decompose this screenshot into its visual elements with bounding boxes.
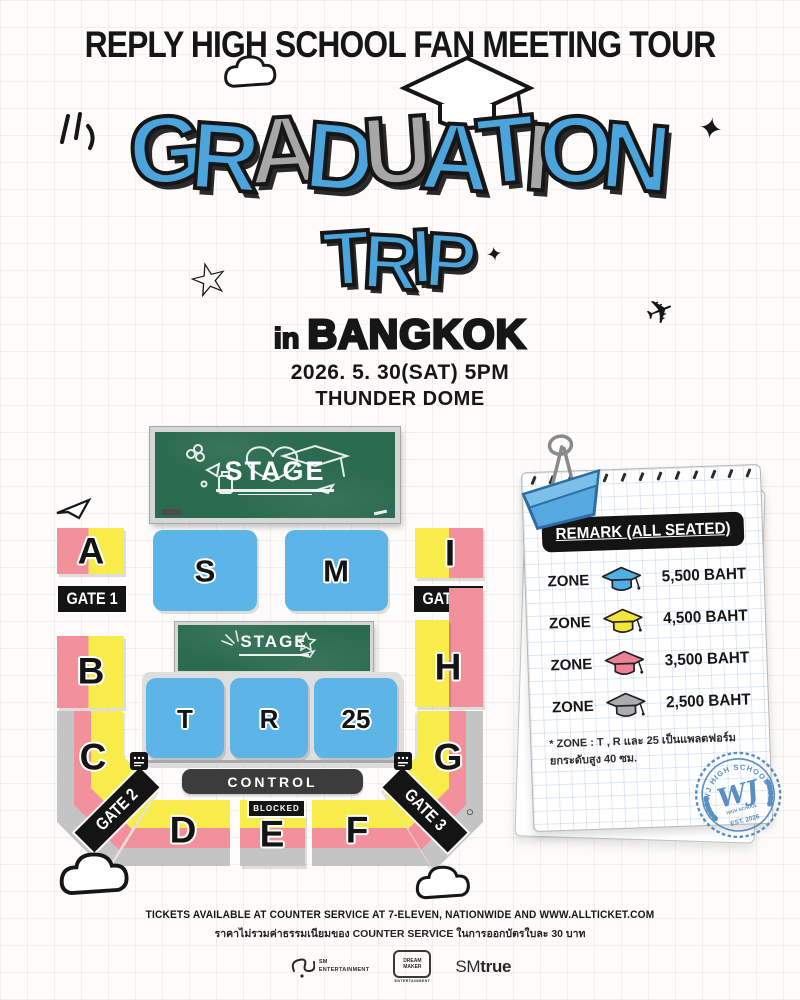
blocked-label: BLOCKED	[249, 801, 304, 816]
paper-plane-doodle	[56, 498, 92, 522]
zone-m-label: M	[323, 556, 349, 587]
zone-e-label: E	[260, 816, 285, 853]
zone-label: ZONE	[552, 697, 605, 716]
event-venue: THUNDER DOME	[0, 388, 800, 411]
price-value: 4,500 BAHT	[663, 607, 748, 628]
sponsor-logo-row: SM ENTERTAINMENT DREAM MAKER ENTERTAINME…	[0, 950, 800, 983]
cloud-doodle	[58, 848, 156, 906]
hero-title-line1: GRADUATION	[0, 100, 800, 206]
binder-clip-icon	[499, 406, 617, 534]
zone-h-label: H	[435, 649, 462, 686]
location-city: BANGKOK	[307, 311, 526, 357]
price-value: 5,500 BAHT	[661, 565, 746, 586]
zone-b-label: B	[78, 653, 105, 690]
zone-t-label: T	[177, 706, 193, 732]
grad-cap-gray-icon	[603, 688, 648, 722]
zone-s-label: S	[195, 556, 216, 587]
zone-label: ZONE	[547, 571, 600, 590]
sm-logo-icon	[289, 955, 315, 979]
second-stage-label: STAGE	[178, 632, 370, 652]
main-stage-label: STAGE	[155, 456, 395, 487]
cloud-doodle	[415, 862, 491, 908]
zone-g-label: G	[434, 739, 463, 776]
zone-25-label: 25	[342, 706, 371, 732]
control-booth: CONTROL	[182, 769, 363, 794]
remark-notepad: REMARK (ALL SEATED) ZONE 5,500 BAHT ZONE	[521, 464, 773, 832]
zone-d-label: D	[170, 812, 197, 849]
hero-location-line: inBANGKOK	[0, 311, 800, 358]
price-value: 2,500 BAHT	[666, 691, 751, 712]
camera-box-icon	[394, 752, 412, 770]
zone-f-label: F	[346, 812, 369, 849]
zone-label: ZONE	[549, 613, 602, 632]
chalk-icon	[374, 510, 387, 516]
grad-cap-blue-icon	[599, 562, 644, 596]
zone-c-label: C	[80, 739, 107, 776]
camera-box-icon	[130, 752, 148, 770]
dream-maker-logo: DREAM MAKER ENTERTAINMENT	[393, 950, 431, 983]
location-prefix: in	[274, 323, 300, 355]
fan-meeting-poster: REPLY HIGH SCHOOL FAN MEETING TOUR ✦ ☆ ✦…	[0, 0, 800, 1000]
hero-title-line2: TRIP	[0, 216, 800, 302]
sm-entertainment-logo: SM ENTERTAINMENT	[289, 955, 370, 979]
grad-cap-pink-icon	[602, 646, 647, 680]
zone-i-label: I	[445, 535, 455, 572]
truss-line	[146, 760, 400, 763]
zone-a-label: A	[78, 533, 105, 570]
zone-label: ZONE	[550, 655, 603, 674]
cloud-doodle	[222, 52, 298, 96]
second-stage-board: STAGE	[175, 622, 373, 674]
price-row: ZONE 2,500 BAHT	[529, 679, 768, 729]
price-value: 3,500 BAHT	[664, 649, 749, 670]
zone-r-label: R	[260, 706, 279, 732]
tickets-availability-line: TICKETS AVAILABLE AT COUNTER SERVICE AT …	[32, 909, 768, 921]
grad-cap-yellow-icon	[600, 604, 645, 638]
smtrue-logo: SMtrue	[455, 957, 511, 977]
gate-1-label: GATE 1	[58, 586, 126, 612]
fee-note-line: ราคาไม่รวมค่าธรรมเนียมของ COUNTER SERVIC…	[0, 925, 800, 942]
event-date: 2026. 5. 30(SAT) 5PM	[0, 361, 800, 385]
eraser-icon	[161, 509, 181, 515]
main-stage-board: STAGE	[150, 427, 400, 523]
circle-doodle: ○	[466, 804, 474, 819]
